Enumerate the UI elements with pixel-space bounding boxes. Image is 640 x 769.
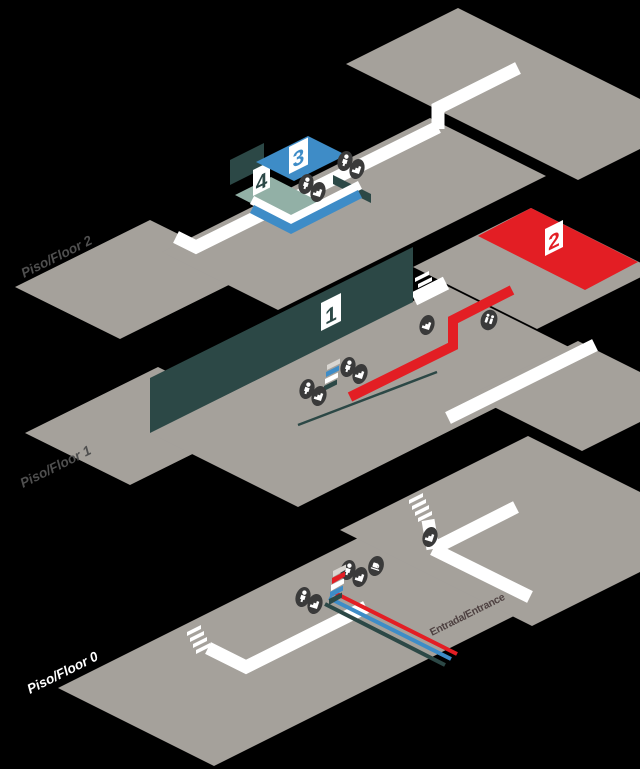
building-isometric-map: 4 3 Piso/Floor 2 1 2 <box>0 0 640 769</box>
floor1-label: Piso/Floor 1 <box>18 443 94 491</box>
floor-map-svg: 4 3 Piso/Floor 2 1 2 <box>0 0 640 769</box>
